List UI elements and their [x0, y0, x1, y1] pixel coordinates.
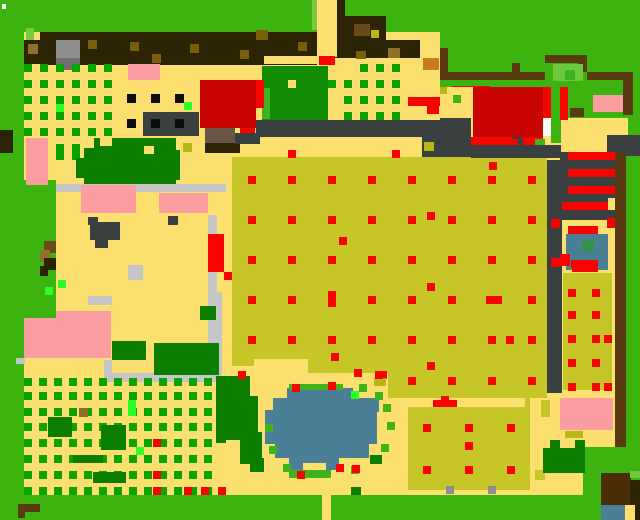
crop-square — [174, 378, 182, 386]
grass-bottom — [0, 495, 640, 520]
fruit-dot — [486, 296, 502, 304]
dark-hole — [127, 119, 136, 128]
crop-square — [69, 378, 77, 386]
red-dot — [218, 487, 226, 495]
crop-square — [376, 112, 384, 120]
crop-square — [189, 408, 197, 416]
sparkle — [128, 408, 136, 416]
plaza — [440, 118, 471, 156]
crop-square — [204, 423, 212, 431]
fruit-dot — [604, 383, 612, 391]
red-dot — [551, 219, 560, 228]
crop-square — [24, 80, 32, 88]
crop-square — [54, 455, 62, 463]
tree-top — [325, 40, 420, 58]
crop-square — [114, 378, 122, 386]
fruit-dot — [507, 424, 515, 432]
crop-square — [56, 152, 64, 160]
fruit-dot — [248, 256, 256, 264]
fruit-dot — [368, 296, 376, 304]
pond-rim — [383, 404, 391, 412]
sparkle — [58, 280, 66, 288]
crop-square — [189, 392, 197, 400]
log — [18, 504, 25, 518]
crop-square — [56, 128, 64, 136]
olive-pixel — [183, 143, 192, 152]
crop-square — [72, 80, 80, 88]
pond-corner — [601, 505, 625, 520]
crop-square — [104, 80, 112, 88]
fruit-dot — [528, 377, 536, 385]
fruit-dot — [528, 176, 536, 184]
crop-square — [24, 96, 32, 104]
fruit-dot — [408, 336, 416, 344]
crop-square — [174, 487, 182, 495]
crop-square — [392, 112, 400, 120]
crop-square — [24, 471, 32, 479]
crop-square — [24, 378, 32, 386]
crop-square — [39, 378, 47, 386]
crop-square — [99, 487, 107, 495]
fruit-dot — [507, 466, 515, 474]
fence — [545, 55, 587, 63]
fruit-dot — [592, 311, 600, 319]
bush — [630, 471, 640, 478]
fruit-dot — [448, 216, 456, 224]
stone-pixel — [488, 486, 496, 494]
soil-speckle — [240, 50, 249, 59]
shed-roof — [601, 473, 631, 505]
fruit-dot — [448, 336, 456, 344]
hedge-gap — [288, 80, 296, 88]
crop-square — [24, 112, 32, 120]
fruit-dot — [392, 150, 400, 158]
pink-roof-house — [81, 185, 136, 213]
pond-weed — [582, 240, 594, 252]
crop-square — [144, 471, 152, 479]
dirt-patch — [205, 128, 235, 144]
crop-square — [144, 378, 152, 386]
pond-big — [265, 410, 377, 444]
fruit-dot — [568, 311, 576, 319]
fruit-dot — [328, 336, 336, 344]
crop-square — [376, 80, 384, 88]
crop-square — [159, 378, 167, 386]
tree-gap — [144, 146, 154, 154]
red-dot — [375, 371, 383, 379]
sparkle — [136, 447, 144, 455]
dark-hole — [151, 119, 160, 128]
crop-square — [204, 408, 212, 416]
crop-square — [129, 378, 137, 386]
fence — [570, 108, 584, 117]
tree-cluster — [112, 341, 146, 360]
red-strip — [208, 234, 224, 272]
fruit-dot — [423, 424, 431, 432]
crop-square — [84, 423, 92, 431]
hedge — [262, 66, 328, 122]
crop-square — [376, 96, 384, 104]
tree-cluster — [575, 440, 585, 448]
tree-gap — [84, 138, 94, 148]
crop-square — [84, 487, 92, 495]
soil-speckle — [88, 40, 97, 49]
crop-square — [54, 378, 62, 386]
crop-square — [189, 423, 197, 431]
crop-square — [144, 455, 152, 463]
fence — [440, 72, 545, 80]
red-mat — [472, 139, 489, 145]
plaza — [471, 145, 568, 158]
fruit-dot — [328, 291, 336, 307]
red-dot — [153, 439, 161, 447]
pond-rim — [381, 444, 389, 452]
crop-square — [129, 471, 137, 479]
fruit-dot — [528, 216, 536, 224]
red-strip — [568, 226, 598, 234]
dark-pixel — [168, 216, 178, 225]
crop-square — [39, 423, 47, 431]
crop-square — [129, 392, 137, 400]
crop-square — [204, 378, 212, 386]
soil-speckle — [152, 54, 161, 63]
fruit-dot — [427, 362, 435, 370]
crop-square — [174, 392, 182, 400]
dirt-pixel — [79, 408, 88, 417]
crop-square — [54, 471, 62, 479]
crop-square — [72, 96, 80, 104]
fruit-dot — [408, 216, 416, 224]
fruit-dot — [465, 424, 473, 432]
shed-roof — [635, 505, 640, 520]
fruit-dot — [224, 272, 232, 280]
pink-roof-small — [593, 95, 623, 112]
crop-square — [174, 471, 182, 479]
tree-top — [28, 44, 38, 54]
pond-rim — [265, 424, 273, 432]
crop-square — [88, 112, 96, 120]
fruit-dot — [368, 216, 376, 224]
red-dot — [352, 465, 360, 473]
crop-square — [114, 455, 122, 463]
pond-rim — [269, 446, 277, 454]
soil-notch — [264, 56, 317, 64]
tree-cluster — [93, 472, 126, 483]
crop-square — [344, 112, 352, 120]
tree-top — [371, 30, 379, 38]
fruit-dot — [465, 442, 473, 450]
fruit-dot — [427, 283, 435, 291]
pond-rim — [289, 470, 331, 478]
stone-pixel — [446, 486, 454, 494]
crop-square — [360, 80, 368, 88]
crop-square — [189, 455, 197, 463]
crop-square — [99, 392, 107, 400]
crop-square — [72, 112, 80, 120]
fruit-dot — [488, 176, 496, 184]
crop-square — [392, 64, 400, 72]
crop-square — [24, 64, 32, 72]
crop-square — [360, 64, 368, 72]
road-vertical — [547, 160, 562, 393]
tree-top — [356, 51, 366, 59]
dark-hole — [151, 94, 160, 103]
fruit-dot — [568, 359, 576, 367]
border-tree — [40, 266, 48, 276]
tree-cluster — [48, 417, 72, 437]
crop-square — [24, 439, 32, 447]
tree-top — [354, 24, 370, 36]
fruit-dot — [528, 296, 536, 304]
crop-square — [159, 455, 167, 463]
pond-rim — [359, 384, 367, 392]
crop-square — [84, 392, 92, 400]
fruit-dot — [506, 336, 514, 344]
crop-square — [129, 423, 137, 431]
fruit-dot — [592, 383, 600, 391]
stone-block — [56, 40, 80, 58]
fruit-dot — [368, 336, 376, 344]
sparkle — [128, 400, 136, 408]
fruit-dot — [448, 176, 456, 184]
dark-hole — [175, 119, 184, 128]
fruit-dot — [248, 216, 256, 224]
crop-square — [39, 392, 47, 400]
crop-square — [39, 487, 47, 495]
crop-square — [56, 80, 64, 88]
crop-square — [69, 487, 77, 495]
sparkle — [56, 104, 64, 112]
stair-step — [568, 186, 617, 194]
crop-square — [39, 455, 47, 463]
crop-square — [69, 408, 77, 416]
stone-path — [88, 296, 112, 305]
fruit-dot — [568, 383, 576, 391]
fruit-dot — [465, 466, 473, 474]
crop-square — [159, 392, 167, 400]
big-crop-field — [232, 359, 254, 366]
fruit-dot — [288, 296, 296, 304]
grass-right-col — [626, 156, 640, 448]
stone-path — [104, 360, 112, 373]
red-dot — [153, 487, 161, 495]
bush — [535, 139, 545, 145]
fruit-dot — [328, 256, 336, 264]
red-dot — [201, 487, 209, 495]
red-roof-trim — [256, 80, 264, 108]
pink-roof-building — [560, 398, 613, 430]
crop-square — [56, 96, 64, 104]
red-strip — [560, 87, 568, 120]
crop-square — [24, 128, 32, 136]
crop-square — [344, 80, 352, 88]
crop-square — [114, 408, 122, 416]
pond-rim — [375, 392, 383, 400]
bottom-path-gap — [322, 495, 331, 520]
crop-square — [72, 128, 80, 136]
pink-roof-house — [159, 193, 208, 213]
crop-square — [129, 455, 137, 463]
tree-cluster — [250, 458, 264, 472]
stair-step — [568, 152, 617, 160]
pixel-farm-map[interactable] — [0, 0, 640, 520]
crate — [423, 58, 439, 70]
red-dot — [560, 254, 570, 266]
red-dot — [297, 471, 305, 479]
crop-square — [99, 378, 107, 386]
crop-square — [56, 64, 64, 72]
fruit-dot — [488, 216, 496, 224]
sparkle — [45, 287, 53, 295]
fruit-dot — [408, 296, 416, 304]
crop-square — [114, 392, 122, 400]
crop-square — [104, 128, 112, 136]
crop-square — [174, 423, 182, 431]
warehouse-trim — [543, 87, 551, 118]
warehouse-red-roof — [473, 87, 543, 137]
crop-square — [104, 96, 112, 104]
crop-square — [39, 439, 47, 447]
crop-square — [204, 471, 212, 479]
crop-square — [88, 128, 96, 136]
tree-cluster — [101, 425, 126, 450]
crop-square — [104, 112, 112, 120]
bush — [453, 95, 461, 103]
fruit-dot — [339, 237, 347, 245]
animal — [95, 240, 108, 248]
dark-hole — [127, 94, 136, 103]
crop-square — [24, 423, 32, 431]
fruit-dot — [489, 162, 497, 170]
crop-square — [360, 96, 368, 104]
crop-square — [72, 144, 80, 152]
fruit-dot — [448, 256, 456, 264]
small-crop-field — [525, 398, 530, 487]
stair-landing — [561, 130, 607, 152]
crop-square — [24, 487, 32, 495]
crop-square — [40, 80, 48, 88]
top-path — [317, 0, 337, 57]
red-banner — [427, 105, 439, 114]
dark-hole — [175, 94, 184, 103]
red-roof-building — [200, 80, 256, 128]
pond-rim — [283, 464, 291, 472]
crop-square — [159, 423, 167, 431]
pond-sand — [303, 463, 326, 470]
fruit-dot — [248, 296, 256, 304]
fruit-dot — [408, 377, 416, 385]
fruit-dot — [528, 256, 536, 264]
pink-roof-small — [128, 64, 160, 80]
crop-square — [360, 112, 368, 120]
path-red-mat — [319, 56, 335, 65]
crop-square — [88, 80, 96, 88]
olive-pixel — [424, 142, 434, 151]
red-dot — [292, 384, 300, 392]
crop-square — [144, 408, 152, 416]
red-mat — [507, 139, 518, 145]
crop-square — [159, 408, 167, 416]
crop-square — [189, 471, 197, 479]
crop-square — [56, 144, 64, 152]
tree-gap — [100, 138, 112, 146]
crop-square — [392, 96, 400, 104]
small-crop-field — [541, 400, 550, 417]
tree-cluster — [550, 440, 560, 448]
crop-square — [328, 80, 336, 88]
fruit-dot — [354, 369, 362, 377]
crop-square — [144, 423, 152, 431]
red-dot — [336, 464, 344, 472]
crop-square — [104, 64, 112, 72]
crop-square — [204, 392, 212, 400]
crop-square — [54, 392, 62, 400]
crop-square — [129, 487, 137, 495]
red-dot — [184, 487, 192, 495]
fruit-dot — [408, 256, 416, 264]
sparkle — [184, 102, 192, 110]
fruit-dot — [448, 296, 456, 304]
fruit-dot — [248, 336, 256, 344]
crop-square — [204, 455, 212, 463]
crop-square — [174, 439, 182, 447]
pond-rim — [387, 422, 395, 430]
fruit-dot — [448, 377, 456, 385]
crop-square — [129, 439, 137, 447]
soil-speckle — [130, 42, 139, 51]
fence — [512, 63, 520, 72]
grass-patch — [551, 118, 561, 143]
tree-top — [388, 48, 400, 58]
fruit-dot — [592, 335, 600, 343]
tree-line — [615, 153, 626, 448]
fruit-dot — [423, 466, 431, 474]
stone-path — [128, 265, 143, 280]
crop-square — [99, 408, 107, 416]
stone-path — [16, 358, 25, 364]
tree-cluster — [543, 448, 585, 473]
fruit-dot — [288, 216, 296, 224]
stair-step — [560, 202, 608, 210]
crop-square — [84, 378, 92, 386]
grass-left — [0, 32, 24, 520]
pink-roof-big — [24, 318, 111, 358]
stair-step — [568, 169, 617, 177]
white-dot — [2, 4, 6, 9]
pink-roof-tall — [26, 138, 48, 185]
crop-square — [174, 408, 182, 416]
road — [256, 120, 440, 137]
fruit-dot — [368, 176, 376, 184]
fruit-dot — [604, 335, 612, 343]
crop-square — [88, 96, 96, 104]
pond-rim — [370, 455, 382, 464]
tree-cluster — [84, 138, 176, 184]
crop-square — [54, 408, 62, 416]
fruit-dot — [592, 359, 600, 367]
crop-square — [189, 378, 197, 386]
animal — [90, 222, 120, 240]
crop-square — [144, 392, 152, 400]
sparkle — [351, 391, 359, 399]
crop-square — [144, 439, 152, 447]
crop-square — [376, 64, 384, 72]
fruit-dot — [288, 256, 296, 264]
white-sign — [543, 118, 551, 136]
soil-speckle — [298, 42, 307, 51]
crop-square — [54, 487, 62, 495]
tree-cluster — [201, 360, 219, 375]
